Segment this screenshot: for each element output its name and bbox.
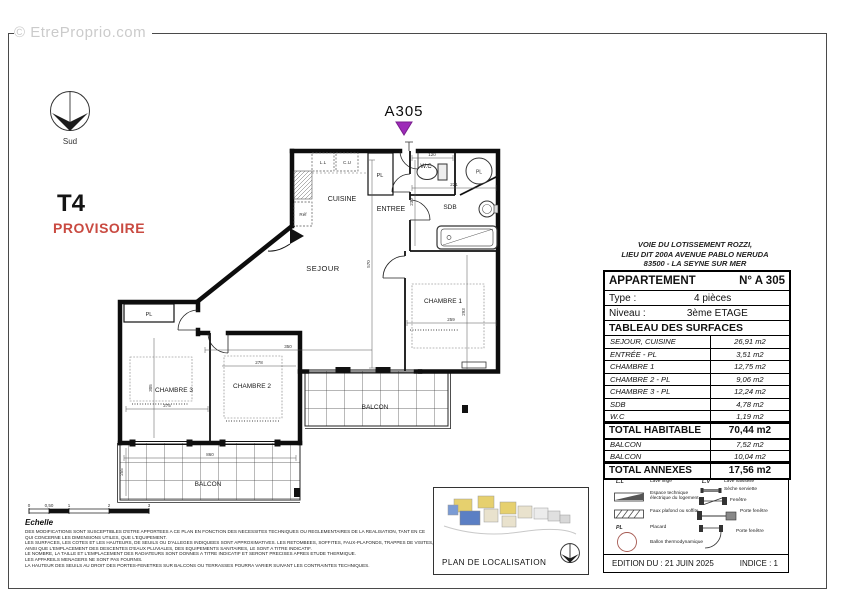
total-annexes-value: 17,56 m2	[710, 464, 789, 478]
faux-plafond-icon	[614, 509, 644, 519]
apartment-type-label: T4	[57, 190, 85, 218]
legend-label: Faux plafond ou soffite	[650, 509, 702, 514]
entry-threshold-mark	[405, 142, 413, 151]
room-label-balcon1: BALCON	[362, 404, 389, 411]
disclaimer-text: DES MODIFICATIONS SONT SUSCEPTIBLES D'ET…	[25, 529, 445, 568]
svg-text:570: 570	[366, 260, 371, 268]
surface-label: CHAMBRE 2 - PL	[605, 375, 710, 384]
scale-bar: 0 0,50 1 2 3	[25, 503, 165, 517]
total-habitable-row: TOTAL HABITABLE 70,44 m2	[605, 423, 789, 438]
svg-text:120: 120	[428, 152, 436, 157]
apartment-marker-label: A305	[377, 103, 431, 120]
legend-label: Sèche serviette	[724, 487, 757, 492]
localisation-compass-icon	[557, 541, 583, 571]
watermark: © EtreProprio.com	[14, 24, 152, 43]
porte-fenetre-battante-icon	[698, 524, 734, 552]
surface-value: 9,06 m2	[710, 374, 789, 386]
address-line: LIEU DIT 200A AVENUE PABLO NERUDA	[601, 250, 789, 260]
total-habitable-value: 70,44 m2	[710, 424, 789, 438]
legend-label: Porte fenêtre	[736, 529, 764, 534]
washer-label: L.L	[320, 160, 327, 165]
compass-label: Sud	[63, 137, 77, 146]
cooker-label: C.U	[343, 160, 351, 165]
type-value: 4 pièces	[636, 293, 789, 304]
site-plan-thumbnail	[440, 492, 580, 544]
total-habitable-label: TOTAL HABITABLE	[605, 425, 710, 436]
disclaimer-line: LA HAUTEUR DES SEUILS AU DROIT DES PORTE…	[25, 563, 445, 569]
closet-label-chambre3: PL	[146, 312, 153, 318]
fridge-label: Réf	[299, 212, 307, 217]
edition-date: EDITION DU : 21 JUIN 2025	[604, 559, 714, 568]
floor-plan-drawing: L.L C.U Réf PL	[110, 138, 530, 513]
svg-text:275: 275	[163, 403, 171, 408]
surface-label: CHAMBRE 3 - PL	[605, 387, 710, 396]
svg-text:305: 305	[148, 384, 153, 392]
address-line: 83500 - LA SEYNE SUR MER	[601, 259, 789, 269]
scale-tick: 2	[108, 503, 111, 508]
level-value: 3ème ETAGE	[646, 308, 789, 319]
scale-tick: 0	[28, 503, 31, 508]
legend-label: Placard	[650, 525, 666, 530]
surfaces-table: APPARTEMENT N° A 305 Type : 4 pièces Niv…	[603, 270, 791, 480]
annex-value: 10,04 m2	[710, 451, 789, 463]
apartment-marker-arrow-icon	[395, 121, 413, 137]
espace-technique-icon	[614, 492, 644, 502]
legend-label: Espace technique électrique du logement	[650, 491, 702, 502]
svg-text:230: 230	[409, 198, 414, 206]
table-row-surface: SEJOUR, CUISINE 26,91 m2	[605, 335, 789, 348]
legend-abbr: L.V	[702, 479, 710, 485]
surface-label: SEJOUR, CUISINE	[605, 337, 710, 346]
address-line: VOIE DU LOTISSEMENT ROZZI,	[601, 240, 789, 250]
room-label-sdb: SDB	[443, 204, 456, 211]
svg-text:350: 350	[284, 344, 292, 349]
svg-text:259: 259	[447, 317, 455, 322]
total-annexes-row: TOTAL ANNEXES 17,56 m2	[605, 463, 789, 478]
annex-label: BALCON	[605, 452, 710, 461]
localisation-box: PLAN DE LOCALISATION	[433, 487, 589, 575]
balcony-right	[305, 371, 468, 429]
room-label-entree: ENTREE	[377, 206, 406, 213]
scale-label: Echelle	[25, 518, 53, 527]
svg-text:860: 860	[206, 452, 214, 457]
project-address: VOIE DU LOTISSEMENT ROZZI, LIEU DIT 200A…	[601, 240, 789, 269]
svg-text:278: 278	[255, 360, 263, 365]
surface-value: 4,78 m2	[710, 399, 789, 411]
table-row-level: Niveau : 3ème ETAGE	[605, 305, 789, 320]
table-row-surface: CHAMBRE 2 - PL 9,06 m2	[605, 373, 789, 386]
annex-value: 7,52 m2	[710, 439, 789, 451]
room-label-wc: W.C	[420, 164, 432, 170]
table-row-surface: W.C 1,19 m2	[605, 410, 789, 423]
surfaces-title: TABLEAU DES SURFACES	[605, 320, 789, 335]
legend: Réf. Réfrigérateur L.L Lave linge Espace…	[603, 464, 789, 556]
water-heater: PL	[466, 158, 492, 184]
disclaimer-line: LES SURFACES, LES COTES ET LES HAUTEURS,…	[25, 540, 445, 546]
edition-indice: INDICE : 1	[740, 559, 788, 568]
svg-text:293: 293	[461, 308, 466, 316]
edition-row: EDITION DU : 21 JUIN 2025 INDICE : 1	[603, 554, 789, 573]
surface-label: CHAMBRE 1	[605, 362, 710, 371]
type-label: Type :	[605, 293, 636, 304]
table-row-annex: BALCON 7,52 m2	[605, 438, 789, 451]
room-label-balcon2: BALCON	[195, 481, 222, 488]
compass-south-icon: Sud	[46, 86, 94, 148]
legend-label: Porte fenêtre	[740, 509, 768, 514]
table-row-apartment: APPARTEMENT N° A 305	[605, 272, 789, 290]
scale-tick: 3	[148, 503, 151, 508]
table-row-surface: ENTRÉE - PL 3,51 m2	[605, 348, 789, 361]
room-label-chambre1: CHAMBRE 1	[424, 298, 462, 305]
apartment-number: N° A 305	[696, 275, 789, 287]
porte-fenetre-coulissante-icon	[696, 509, 738, 522]
scale-tick: 1	[68, 503, 71, 508]
surface-label: ENTRÉE - PL	[605, 350, 710, 359]
table-row-surface: SDB 4,78 m2	[605, 398, 789, 411]
apartment-label: APPARTEMENT	[605, 275, 696, 287]
room-label-chambre3: CHAMBRE 3	[155, 387, 193, 394]
surface-value: 1,19 m2	[710, 411, 789, 423]
table-row-type: Type : 4 pièces	[605, 290, 789, 305]
room-label-chambre2: CHAMBRE 2	[233, 383, 271, 390]
legend-label: Fenêtre	[730, 498, 747, 503]
legend-label: Lave linge	[650, 479, 672, 484]
radiator	[462, 362, 486, 368]
closet-label-entree: PL	[377, 173, 384, 179]
surface-label: SDB	[605, 400, 710, 409]
room-label-sejour: SEJOUR	[306, 264, 340, 273]
svg-text:221: 221	[450, 182, 458, 187]
floor-plan-sheet: © EtreProprio.com Sud T4 PROVISOIRE A305	[0, 0, 841, 595]
legend-abbr: L.L	[616, 479, 624, 485]
seche-serviette-icon	[700, 487, 722, 494]
surface-value: 12,24 m2	[710, 386, 789, 398]
water-heater-label: PL	[476, 170, 482, 176]
surface-value: 26,91 m2	[710, 336, 789, 348]
disclaimer-line: DES MODIFICATIONS SONT SUSCEPTIBLES D'ET…	[25, 529, 445, 535]
total-annexes-label: TOTAL ANNEXES	[605, 465, 710, 476]
ballon-icon	[616, 531, 638, 553]
table-row-annex: BALCON 10,04 m2	[605, 450, 789, 463]
annex-label: BALCON	[605, 440, 710, 449]
fenetre-icon	[698, 496, 728, 507]
table-row-surface: CHAMBRE 1 12,75 m2	[605, 360, 789, 373]
level-label: Niveau :	[605, 308, 646, 319]
svg-text:255: 255	[119, 468, 124, 476]
legend-label: Lave vaisselle	[724, 479, 754, 484]
surface-value: 3,51 m2	[710, 349, 789, 361]
localisation-label: PLAN DE LOCALISATION	[442, 558, 546, 567]
table-row-surface: CHAMBRE 3 - PL 12,24 m2	[605, 385, 789, 398]
surface-label: W.C	[605, 412, 710, 421]
room-label-cuisine: CUISINE	[328, 196, 357, 203]
scale-tick: 0,50	[45, 503, 54, 508]
surface-value: 12,75 m2	[710, 361, 789, 373]
